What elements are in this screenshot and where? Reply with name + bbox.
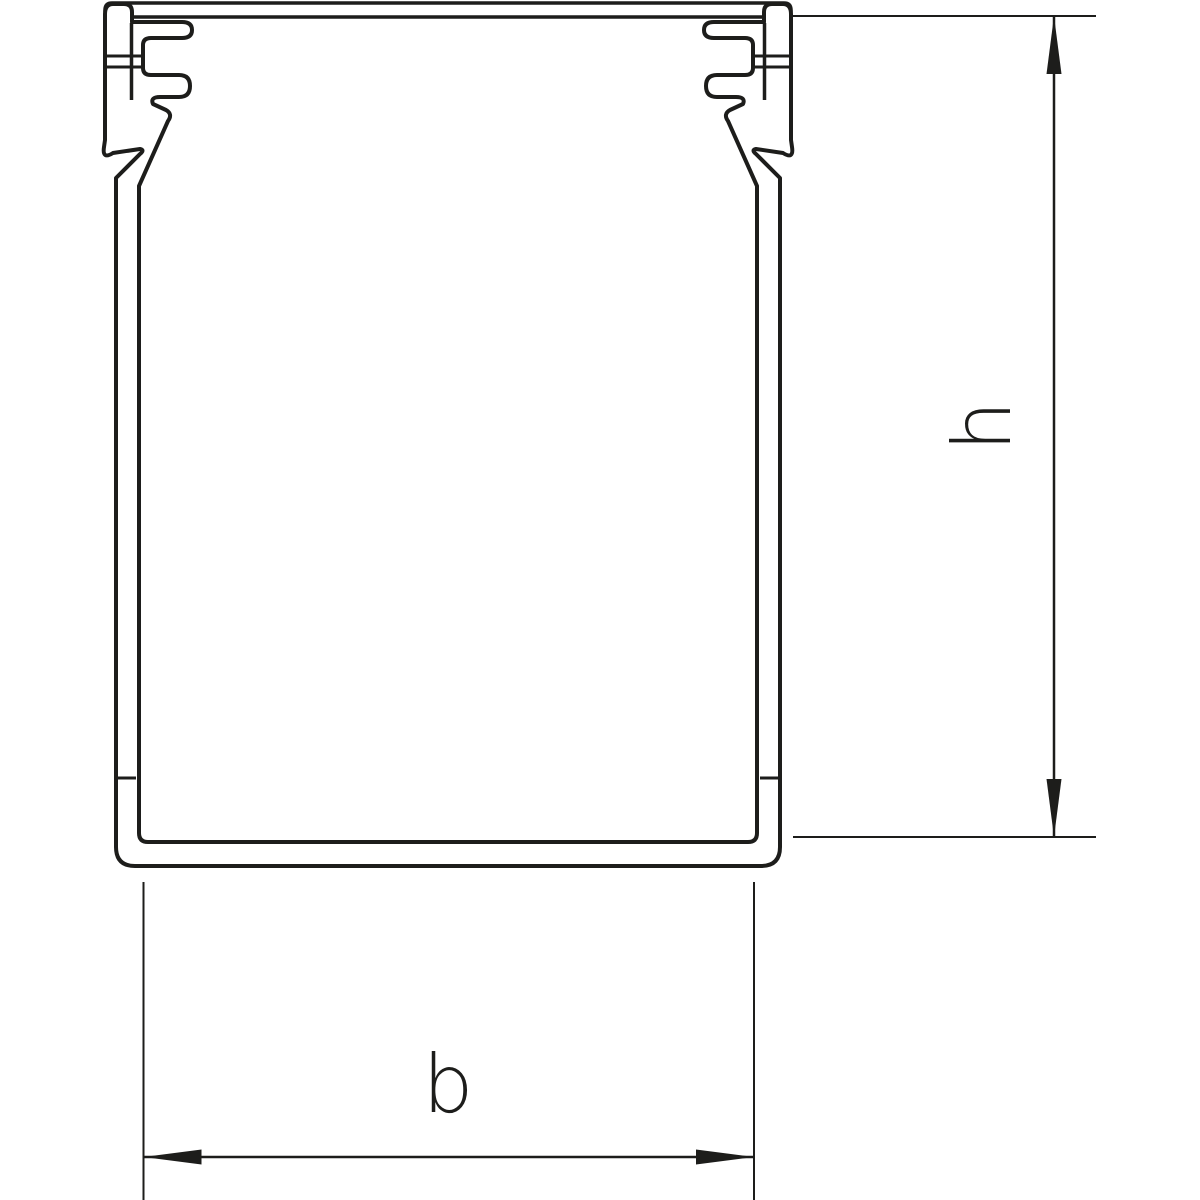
duct-cross-section-drawing: h b [0, 0, 1200, 1200]
height-dimension-label: h [943, 401, 1023, 452]
b-arrow-right-icon [696, 1150, 754, 1165]
h-arrow-down-icon [1047, 779, 1062, 837]
width-dimension-label: b [423, 1045, 474, 1125]
h-arrow-up-icon [1047, 16, 1062, 74]
b-arrow-left-icon [144, 1150, 202, 1165]
profile-drawing-canvas [0, 0, 1200, 1200]
duct-profile-outline [104, 4, 793, 866]
cover-outline [105, 3, 791, 17]
